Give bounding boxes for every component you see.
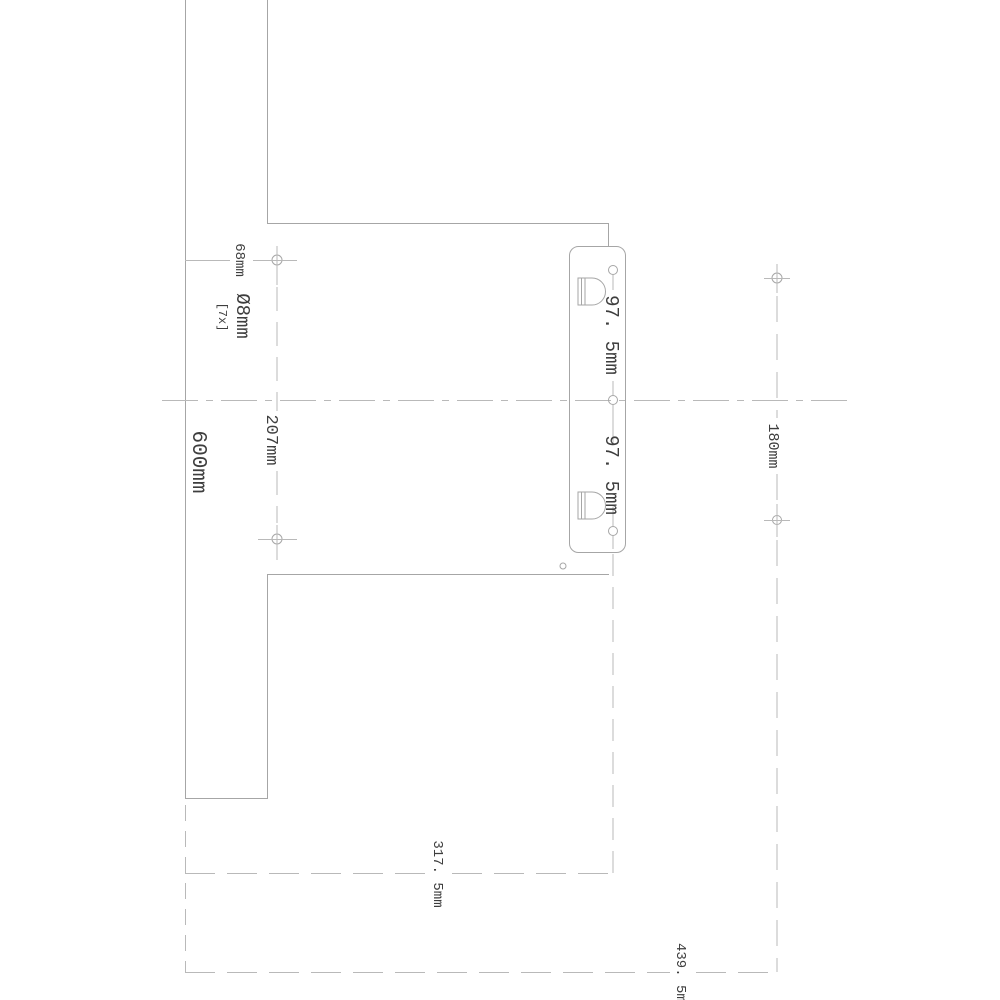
dim-97-5mm-upper-label: 97. 5mm xyxy=(600,295,622,375)
dim-317-5mm-label: 317. 5mm xyxy=(429,840,445,907)
dim-180mm-label: 180mm xyxy=(764,423,781,468)
dim-439-5mm-label: 439. 5mm xyxy=(672,943,688,1000)
right-hole-top-crosshair xyxy=(764,264,790,293)
right-hole-pattern xyxy=(764,264,790,972)
dimension-labels: 68mm Ø8mm [7x] 600mm 207mm 97. 5mm 97. 5… xyxy=(186,243,781,1000)
bottom-dimension-lines xyxy=(185,554,777,973)
hole-count-label: [7x] xyxy=(215,303,229,332)
bracket-hole-bottom xyxy=(609,527,618,536)
small-pin-hole xyxy=(560,563,566,569)
dim-97-5mm-lower-label: 97. 5mm xyxy=(600,435,622,515)
left-hole-top-crosshair xyxy=(253,246,297,285)
dim-600mm-label: 600mm xyxy=(186,430,209,493)
dim-68mm-label: 68mm xyxy=(231,243,247,277)
panel-outline xyxy=(186,0,610,799)
dim-207mm-label: 207mm xyxy=(261,414,280,465)
right-hole-bottom-crosshair xyxy=(764,504,790,537)
left-hole-bottom-crosshair xyxy=(258,525,297,560)
bracket-hole-top xyxy=(609,266,618,275)
technical-drawing-canvas: 68mm Ø8mm [7x] 600mm 207mm 97. 5mm 97. 5… xyxy=(0,0,1000,1000)
hole-diameter-label: Ø8mm xyxy=(231,293,253,339)
